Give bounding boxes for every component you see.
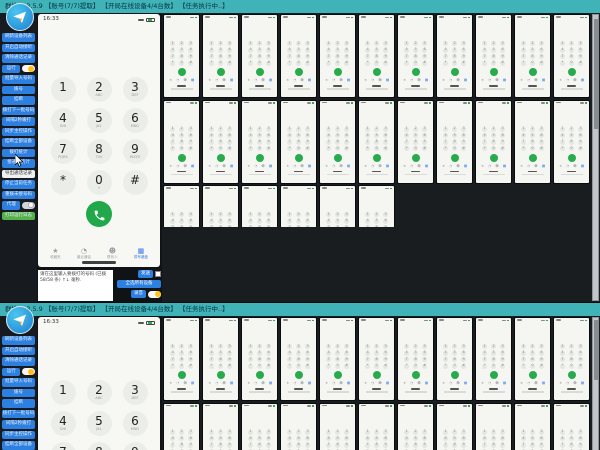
mini-home-indicator [294, 388, 303, 390]
mini-phone-screen: 123456789*0#★◔☻▦ [281, 186, 316, 227]
keypad-icon: ▦ [581, 165, 584, 169]
mini-signal-icon [502, 102, 506, 104]
favorites-icon: ★ [481, 165, 484, 169]
mini-clock-text [322, 187, 327, 189]
sidebar-button[interactable]: 拨号 [2, 389, 35, 398]
sidebar-button[interactable]: 挂断全部设备 [2, 138, 35, 147]
mini-dial-key: 9 [422, 443, 427, 448]
mini-phone-screen: 123456789*0#★◔☻▦ [242, 15, 277, 97]
mini-dial-key: 0 [218, 364, 223, 369]
mini-call-button [529, 68, 537, 76]
mini-call-icon [180, 373, 184, 377]
dial-key-pound[interactable]: # [123, 170, 148, 195]
mini-battery-icon [468, 320, 471, 322]
mini-caption-text [288, 391, 310, 393]
mini-caption-text [405, 174, 427, 176]
mini-tab-bar: ★◔☻▦ [208, 382, 233, 386]
mini-signal-icon [229, 405, 233, 407]
favorites-icon: ★ [247, 382, 250, 386]
scrollbar-thumb[interactable] [594, 320, 599, 380]
sidebar-button[interactable]: 代理 [2, 201, 20, 210]
sidebar-button[interactable]: 开启自动接听 [2, 44, 35, 53]
mini-home-indicator [333, 85, 342, 87]
mini-phone-device[interactable]: 123456789*0#★◔☻▦ [514, 100, 551, 184]
mini-home-indicator [528, 388, 537, 390]
mini-dial-key: 1 [443, 344, 448, 349]
mini-dial-key: 3 [344, 212, 349, 217]
mini-phone-device[interactable]: 123456789*0#★◔☻▦ [241, 100, 278, 184]
dial-key-letters: MNO [131, 428, 139, 432]
mini-phone-device[interactable]: 123456789*0#★◔☻▦ [319, 14, 356, 98]
mini-phone-device[interactable]: 123456789*0#★◔☻▦ [280, 317, 317, 401]
mini-phone-screen: 123456789*0#★◔☻▦ [164, 404, 199, 450]
dial-key-2[interactable]: 2ABC [87, 380, 112, 405]
dial-key-8[interactable]: 8TUV [87, 139, 112, 164]
mini-signal-icon [229, 17, 233, 19]
mini-status-right [463, 319, 471, 322]
mini-phone-device[interactable]: 123456789*0#★◔☻▦ [163, 185, 200, 227]
dial-key-2[interactable]: 2ABC [87, 77, 112, 102]
mini-home-indicator [333, 171, 342, 173]
mini-dial-key: 7 [248, 357, 253, 362]
mini-phone-screen: 123456789*0#★◔☻▦ [203, 101, 238, 183]
mini-dial-key: 6 [227, 219, 232, 224]
favorites-icon: ★ [559, 382, 562, 386]
toggle-switch[interactable] [22, 65, 35, 72]
mini-call-button [412, 68, 420, 76]
dial-key-1[interactable]: 1 [51, 380, 76, 405]
toggle-switch[interactable] [22, 202, 35, 209]
mini-dial-key: 0 [218, 146, 223, 151]
sidebar-button[interactable]: 清除通话记录 [2, 54, 35, 63]
select-all-button[interactable]: 全选所有设备 [117, 280, 161, 288]
dial-key-4[interactable]: 4GHI [51, 411, 76, 436]
mini-dialpad: 123456789*0# [248, 212, 271, 227]
mini-battery-icon [390, 17, 393, 19]
mini-dial-key: 8 [452, 357, 457, 362]
mini-phone-device[interactable]: 123456789*0#★◔☻▦ [475, 14, 512, 98]
mini-phone-device[interactable]: 123456789*0#★◔☻▦ [202, 403, 239, 450]
favorites-icon: ★ [403, 165, 406, 169]
tab-recents[interactable]: ◔最近通话 [77, 248, 91, 260]
mini-call-icon [531, 373, 535, 377]
dial-key-7[interactable]: 7PQRS [51, 139, 76, 164]
mini-dial-key: 5 [179, 48, 184, 53]
mini-battery-icon [546, 17, 549, 19]
mini-phone-device[interactable]: 123456789*0#★◔☻▦ [475, 100, 512, 184]
mini-phone-device[interactable]: 123456789*0#★◔☻▦ [202, 14, 239, 98]
grid-scrollbar[interactable] [592, 317, 599, 450]
mini-dial-key: # [344, 146, 349, 151]
recents-icon: ◔ [410, 165, 413, 169]
sidebar-button[interactable]: 拨号 [2, 86, 35, 95]
mini-battery-icon [312, 102, 315, 104]
dial-key-5[interactable]: 5JKL [87, 108, 112, 133]
status-time: 16:33 [43, 320, 59, 326]
mini-home-indicator [372, 388, 381, 390]
favorites-icon: ★ [286, 165, 289, 169]
tab-keypad[interactable]: ▦拨号键盘 [134, 248, 148, 260]
keypad-icon: ▦ [542, 79, 545, 83]
mini-phone-device[interactable]: 123456789*0#★◔☻▦ [202, 185, 239, 227]
mini-dial-key: 6 [578, 133, 583, 138]
dial-key-6[interactable]: 6MNO [123, 411, 148, 436]
dial-key-digit: 0 [95, 174, 103, 186]
recents-icon: ◔ [215, 79, 218, 83]
dial-key-4[interactable]: 4GHI [51, 108, 76, 133]
mini-phone-device[interactable]: 123456789*0#★◔☻▦ [241, 185, 278, 227]
dial-key-1[interactable]: 1 [51, 77, 76, 102]
sidebar-button[interactable]: 重拨未接号码 [2, 191, 35, 200]
mini-dial-key: 9 [461, 54, 466, 59]
mini-phone-device[interactable]: 123456789*0#★◔☻▦ [553, 100, 590, 184]
send-button[interactable]: 发送 [138, 270, 153, 278]
mini-dial-key: 7 [482, 140, 487, 145]
mini-phone-device[interactable]: 123456789*0#★◔☻▦ [319, 100, 356, 184]
mini-clock-text [361, 187, 366, 189]
recents-icon: ◔ [293, 165, 296, 169]
mini-dial-key: 1 [365, 127, 370, 132]
mini-status-bar [437, 404, 472, 408]
grid-scrollbar[interactable] [592, 14, 599, 301]
mini-clock-text [166, 187, 171, 189]
mini-battery-icon [390, 188, 393, 190]
mini-dial-key: 0 [413, 146, 418, 151]
mini-status-right [502, 102, 510, 105]
mini-home-indicator [255, 85, 264, 87]
mini-phone-device[interactable]: 123456789*0#★◔☻▦ [514, 14, 551, 98]
recents-icon: ◔ [527, 165, 530, 169]
contacts-icon: ☻ [109, 248, 116, 255]
mini-dial-key: 4 [521, 436, 526, 441]
mini-signal-icon [424, 320, 428, 322]
mini-status-bar [242, 318, 277, 322]
recents-icon: ◔ [215, 382, 218, 386]
mini-dial-key: 5 [218, 351, 223, 356]
dial-key-3[interactable]: 3DEF [123, 380, 148, 405]
mini-dialpad: 123456789*0# [365, 212, 388, 227]
mini-dial-key: 3 [305, 41, 310, 46]
mini-call-button [568, 68, 576, 76]
mini-dial-key: 9 [461, 443, 466, 448]
toggle-switch[interactable] [22, 368, 35, 375]
mini-signal-icon [190, 102, 194, 104]
mini-phone-device[interactable]: 123456789*0#★◔☻▦ [514, 403, 551, 450]
dial-key-7[interactable]: 7PQRS [51, 442, 76, 450]
mini-phone-device[interactable]: 123456789*0#★◔☻▦ [319, 317, 356, 401]
mini-phone-screen: 123456789*0#★◔☻▦ [476, 318, 511, 400]
tab-favorites[interactable]: ★收藏夹 [50, 248, 61, 260]
sidebar-button[interactable]: 挂断全部设备 [2, 441, 35, 450]
mini-dial-key: 2 [530, 430, 535, 435]
mini-phone-device[interactable]: 123456789*0#★◔☻▦ [163, 100, 200, 184]
mini-dial-key: 8 [296, 140, 301, 145]
mini-status-bar [359, 404, 394, 408]
mini-status-right [346, 187, 354, 190]
mini-home-indicator [177, 171, 186, 173]
dial-key-digit: 5 [95, 112, 103, 124]
mini-dial-key: 4 [443, 48, 448, 53]
mini-dial-key: 2 [374, 430, 379, 435]
mini-phone-device[interactable]: 123456789*0#★◔☻▦ [436, 403, 473, 450]
mini-phone-device[interactable]: 123456789*0#★◔☻▦ [319, 185, 356, 227]
favorites-icon: ★ [403, 79, 406, 83]
mini-dial-key: 4 [365, 48, 370, 53]
mini-tab-bar: ★◔☻▦ [169, 79, 194, 83]
mini-status-bar [242, 404, 277, 408]
mini-dial-key: 4 [365, 351, 370, 356]
sidebar-button[interactable]: 批量导入号码 [2, 75, 35, 84]
mini-battery-icon [273, 320, 276, 322]
mini-tab-bar: ★◔☻▦ [364, 382, 389, 386]
mini-dial-key: 9 [383, 54, 388, 59]
mini-phone-device[interactable]: 123456789*0#★◔☻▦ [319, 403, 356, 450]
recents-icon: ◔ [254, 165, 257, 169]
mini-dial-key: 8 [179, 443, 184, 448]
mini-phone-device[interactable]: 123456789*0#★◔☻▦ [358, 403, 395, 450]
mini-phone-device[interactable]: 123456789*0#★◔☻▦ [397, 14, 434, 98]
mini-phone-device[interactable]: 123456789*0#★◔☻▦ [475, 317, 512, 401]
control-buttons: 发送全选所有设备录音 [115, 270, 161, 301]
mini-phone-device[interactable]: 123456789*0#★◔☻▦ [436, 317, 473, 401]
mini-dial-key: 3 [266, 41, 271, 46]
sidebar-button[interactable]: 同步主控操作 [2, 431, 35, 440]
sidebar-button[interactable]: 打印运行日志 [2, 212, 35, 221]
mini-phone-device[interactable]: 123456789*0#★◔☻▦ [202, 317, 239, 401]
mini-dial-key: 8 [257, 140, 262, 145]
mini-dial-key: * [404, 364, 409, 369]
mini-phone-device[interactable]: 123456789*0#★◔☻▦ [553, 403, 590, 450]
mini-dial-key: # [344, 364, 349, 369]
contacts-icon: ☻ [300, 382, 304, 386]
mini-phone-screen: 123456789*0#★◔☻▦ [281, 101, 316, 183]
mini-call-button [295, 371, 303, 379]
mini-dialpad: 123456789*0# [170, 430, 193, 450]
mini-dial-key: 0 [374, 364, 379, 369]
mini-dial-key: 1 [365, 41, 370, 46]
favorites-icon: ★ [325, 165, 328, 169]
sidebar-button[interactable]: 挂断 [2, 96, 35, 105]
mini-clock-text [322, 16, 327, 18]
keypad-icon: ▦ [503, 165, 506, 169]
mini-dial-key: * [521, 61, 526, 66]
mini-dial-key: 2 [257, 344, 262, 349]
mini-phone-device[interactable]: 123456789*0#★◔☻▦ [436, 100, 473, 184]
contacts-icon: ☻ [378, 165, 382, 169]
sidebar-button[interactable]: 开启自动接听 [2, 347, 35, 356]
mini-phone-device[interactable]: 123456789*0#★◔☻▦ [241, 317, 278, 401]
dial-key-3[interactable]: 3DEF [123, 77, 148, 102]
dial-key-9[interactable]: 9WXYZ [123, 139, 148, 164]
mini-dial-key: 1 [170, 430, 175, 435]
recents-icon: ◔ [488, 165, 491, 169]
mini-dial-key: 0 [257, 61, 262, 66]
scrollbar-thumb[interactable] [594, 19, 599, 129]
dial-key-5[interactable]: 5JKL [87, 411, 112, 436]
mini-phone-screen: 123456789*0#★◔☻▦ [359, 101, 394, 183]
mini-dial-key: 8 [374, 140, 379, 145]
sidebar-button[interactable]: 间隔2秒拨打 [2, 117, 35, 126]
tab-contacts[interactable]: ☻联系人 [107, 248, 118, 260]
call-button[interactable] [86, 201, 112, 227]
mini-phone-device[interactable]: 123456789*0#★◔☻▦ [358, 317, 395, 401]
mini-status-right [424, 102, 432, 105]
mini-dial-key: 5 [413, 133, 418, 138]
mini-dial-key: 2 [218, 344, 223, 349]
mini-phone-device[interactable]: 123456789*0#★◔☻▦ [163, 14, 200, 98]
mini-phone-device[interactable]: 123456789*0#★◔☻▦ [241, 14, 278, 98]
sidebar-button[interactable]: 刷新设备列表 [2, 33, 35, 42]
mini-dial-key: * [287, 364, 292, 369]
sidebar-button[interactable]: 同步主控操作 [2, 128, 35, 137]
mini-status-bar [281, 186, 316, 190]
mini-dial-key: 2 [335, 344, 340, 349]
keypad-icon: ▦ [138, 248, 145, 255]
mini-dial-key: 5 [413, 436, 418, 441]
mini-phone-device[interactable]: 123456789*0#★◔☻▦ [202, 100, 239, 184]
mini-phone-device[interactable]: 123456789*0#★◔☻▦ [436, 14, 473, 98]
mini-battery-icon [429, 17, 432, 19]
mini-phone-device[interactable]: 123456789*0#★◔☻▦ [397, 403, 434, 450]
mini-status-right [580, 16, 588, 19]
mini-call-icon [219, 70, 223, 74]
battery-icon [146, 321, 155, 326]
mini-call-button [568, 371, 576, 379]
mini-dial-key: 1 [287, 127, 292, 132]
dial-key-0[interactable]: 0+ [87, 170, 112, 195]
mini-dial-key: 6 [227, 436, 232, 441]
mini-dial-key: 0 [491, 364, 496, 369]
mini-caption-text [249, 391, 271, 393]
sidebar-toggle-row: 代理 [2, 201, 35, 210]
recents-icon: ◔ [527, 382, 530, 386]
mini-dial-key: 6 [422, 48, 427, 53]
mini-phone-device[interactable]: 123456789*0#★◔☻▦ [514, 317, 551, 401]
sidebar-button[interactable]: 批量导入号码 [2, 378, 35, 387]
mini-phone-device[interactable]: 123456789*0#★◔☻▦ [397, 317, 434, 401]
mini-phone-device[interactable]: 123456789*0#★◔☻▦ [280, 100, 317, 184]
mini-dial-key: 3 [188, 344, 193, 349]
mini-battery-icon [390, 320, 393, 322]
sidebar-button[interactable]: 停止当前任务 [2, 180, 35, 189]
mini-phone-device[interactable]: 123456789*0#★◔☻▦ [241, 403, 278, 450]
mini-status-right [190, 405, 198, 408]
mini-phone-device[interactable]: 123456789*0#★◔☻▦ [475, 403, 512, 450]
sidebar-button[interactable]: 清除通话记录 [2, 357, 35, 366]
sidebar-button[interactable]: 挂断 [2, 399, 35, 408]
mini-dial-key: # [578, 364, 583, 369]
mini-phone-screen: 123456789*0#★◔☻▦ [515, 318, 550, 400]
contacts-icon: ☻ [300, 165, 304, 169]
mini-signal-icon [541, 102, 545, 104]
mini-phone-device[interactable]: 123456789*0#★◔☻▦ [163, 403, 200, 450]
mini-dial-key: 4 [521, 351, 526, 356]
mini-call-button [451, 68, 459, 76]
record-button[interactable]: 录音 [131, 290, 146, 298]
mini-status-bar [320, 101, 355, 105]
mini-battery-icon [429, 102, 432, 104]
sidebar-button[interactable]: 间隔2秒拨打 [2, 420, 35, 429]
call-icon [93, 207, 106, 220]
mini-status-bar [515, 101, 550, 105]
dial-key-8[interactable]: 8TUV [87, 442, 112, 450]
mini-phone-screen: 123456789*0#★◔☻▦ [515, 101, 550, 183]
mini-dial-key: 6 [500, 351, 505, 356]
mini-call-icon [258, 373, 262, 377]
recents-icon: ◔ [449, 165, 452, 169]
mini-tab-bar: ★◔☻▦ [364, 79, 389, 83]
mini-dial-key: 5 [296, 219, 301, 224]
mini-dial-key: 2 [179, 344, 184, 349]
mini-phone-device[interactable]: 123456789*0#★◔☻▦ [280, 403, 317, 450]
mini-dial-key: 3 [188, 127, 193, 132]
sidebar-button[interactable]: 拨打下一批号码 [2, 107, 35, 116]
dialer-phone-screen: 16:3312ABC3DEF4GHI5JKL6MNO7PQRS8TUV9WXYZ… [38, 14, 160, 267]
dial-key-digit: 3 [131, 384, 139, 396]
mini-clock-text [400, 102, 405, 104]
mini-dialpad: 123456789*0# [521, 41, 544, 66]
mini-dial-key: 2 [569, 41, 574, 46]
mini-dial-key: 5 [530, 351, 535, 356]
dial-key-6[interactable]: 6MNO [123, 108, 148, 133]
dial-key-star[interactable]: * [51, 170, 76, 195]
mini-dial-key: 2 [491, 41, 496, 46]
mini-signal-icon [268, 188, 272, 190]
mini-phone-device[interactable]: 123456789*0#★◔☻▦ [553, 14, 590, 98]
contacts-icon: ☻ [417, 79, 421, 83]
mini-phone-device[interactable]: 123456789*0#★◔☻▦ [553, 317, 590, 401]
checkbox[interactable] [155, 271, 161, 277]
number-input[interactable]: 请在这里输入要拨打的号码 (已拨 58/58 条) ↑↓ 毫秒. [38, 270, 113, 301]
phone-status-bar: 16:33 [38, 317, 160, 326]
mini-dial-key: 9 [266, 443, 271, 448]
mini-phone-device[interactable]: 123456789*0#★◔☻▦ [358, 185, 395, 227]
mini-tab-bar: ★◔☻▦ [286, 79, 311, 83]
mini-phone-device[interactable]: 123456789*0#★◔☻▦ [358, 100, 395, 184]
dial-key-9[interactable]: 9WXYZ [123, 442, 148, 450]
mini-phone-device[interactable]: 123456789*0#★◔☻▦ [163, 317, 200, 401]
mini-phone-device[interactable]: 123456789*0#★◔☻▦ [280, 14, 317, 98]
mini-dial-key: 7 [170, 443, 175, 448]
mini-dial-key: 7 [326, 140, 331, 145]
dial-key-digit: 9 [131, 143, 139, 155]
mini-caption-text [249, 174, 271, 176]
mini-dial-key: # [266, 364, 271, 369]
sidebar-button[interactable]: 拨打下一批号码 [2, 410, 35, 419]
mini-dial-key: 7 [248, 54, 253, 59]
tab-label: 收藏夹 [50, 256, 61, 260]
mini-phone-device[interactable]: 123456789*0#★◔☻▦ [397, 100, 434, 184]
record-toggle[interactable] [148, 291, 161, 298]
mini-signal-icon [463, 17, 467, 19]
mini-phone-device[interactable]: 123456789*0#★◔☻▦ [280, 185, 317, 227]
mini-signal-icon [463, 405, 467, 407]
sidebar-button[interactable]: 运行 [2, 368, 20, 377]
mini-dial-key: 1 [287, 430, 292, 435]
contacts-icon: ☻ [339, 165, 343, 169]
mini-phone-device[interactable]: 123456789*0#★◔☻▦ [358, 14, 395, 98]
mini-call-icon [297, 156, 301, 160]
mini-dial-key: 1 [248, 212, 253, 217]
mini-dial-key: 7 [560, 443, 565, 448]
sidebar-button[interactable]: 运行 [2, 65, 20, 74]
sidebar-button[interactable]: 刷新设备列表 [2, 336, 35, 345]
mini-dial-key: 2 [452, 344, 457, 349]
mini-dial-key: 9 [188, 443, 193, 448]
mini-dial-key: 5 [335, 133, 340, 138]
mini-phone-screen: 123456789*0#★◔☻▦ [242, 101, 277, 183]
mini-dial-key: 3 [344, 41, 349, 46]
